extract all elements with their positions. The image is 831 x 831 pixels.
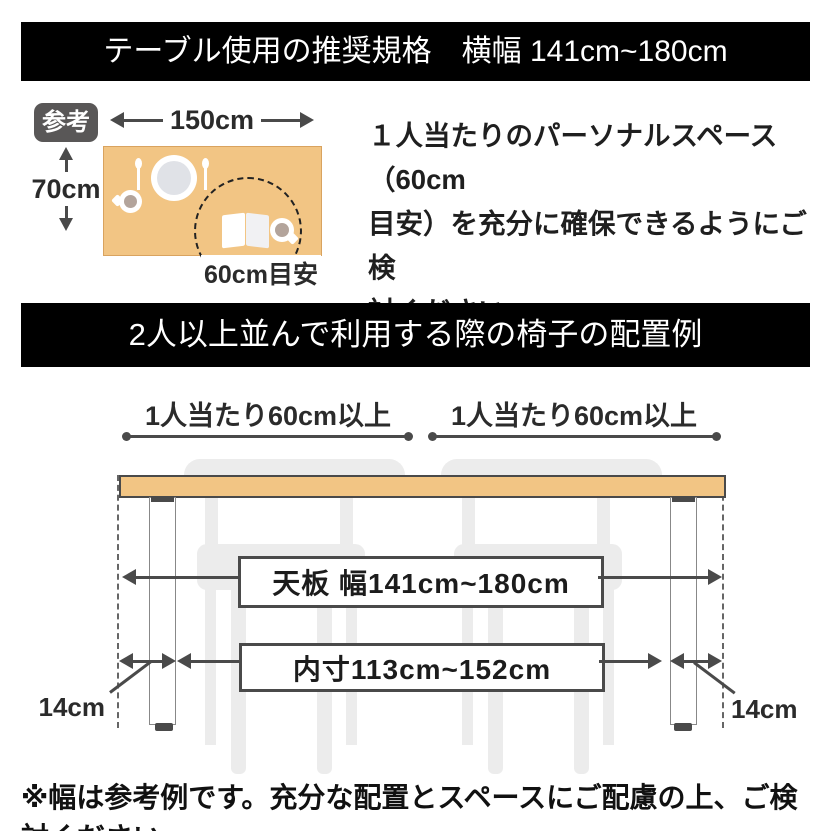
arrow-up-icon	[59, 147, 73, 160]
table-leg-left	[149, 497, 176, 725]
arrow-left-icon	[122, 569, 136, 585]
arrow-right-icon	[162, 653, 176, 669]
table-depth-dimension: 70cm	[28, 147, 104, 231]
cup-inner	[275, 223, 289, 237]
arrow-right-icon	[300, 112, 314, 128]
personal-space-description: １人当たりのパーソナルスペース（60cm 目安）を充分に確保できるようにご検 討…	[368, 114, 824, 334]
table-leg-cap	[672, 497, 695, 502]
book-icon	[246, 213, 269, 249]
arrangement-banner: 2人以上並んで利用する際の椅子の配置例	[21, 303, 810, 367]
arrow-left-icon	[177, 653, 191, 669]
edge-projection-line-right	[722, 475, 724, 728]
edge-projection-line-left	[117, 475, 119, 728]
dimension-line	[124, 119, 163, 122]
table-leg-foot	[674, 723, 692, 731]
fork-icon	[135, 158, 142, 169]
dimension-line	[65, 160, 68, 172]
per-person-label-left: 1人当たり60cm以上	[124, 394, 412, 433]
inner-width-box: 内寸113cm~152cm	[239, 643, 605, 692]
plate-inner-circle	[157, 161, 191, 195]
leg-inset-label-left: 14cm	[35, 692, 105, 723]
measure-dot	[404, 432, 413, 441]
table-depth-label: 70cm	[31, 172, 100, 206]
personal-space-label: 60cm目安	[201, 255, 321, 291]
spoon-icon	[202, 158, 209, 169]
description-line: １人当たりのパーソナルスペース（60cm	[368, 114, 824, 202]
book-icon	[222, 213, 245, 249]
table-leg-foot	[155, 723, 173, 731]
table-leg-cap	[151, 497, 174, 502]
reference-badge-label: 参考	[42, 109, 90, 136]
reference-badge: 参考	[34, 103, 98, 142]
table-width-dimension: 150cm	[110, 105, 314, 135]
top-banner: テーブル使用の推奨規格 横幅 141cm~180cm	[21, 22, 810, 81]
dimension-line	[135, 576, 238, 579]
per-person-label-right: 1人当たり60cm以上	[430, 394, 718, 433]
arrow-right-icon	[708, 653, 722, 669]
table-leg-right	[670, 497, 697, 725]
description-line: 目安）を充分に確保できるようにご検	[368, 202, 824, 290]
inner-width-label: 内寸113cm~152cm	[293, 648, 551, 688]
arrow-left-icon	[119, 653, 133, 669]
dimension-line	[190, 660, 239, 663]
tabletop-width-box: 天板 幅141cm~180cm	[238, 556, 604, 608]
dimension-line	[599, 660, 648, 663]
arrangement-banner-title: 2人以上並んで利用する際の椅子の配置例	[129, 317, 703, 352]
measure-line-right	[436, 435, 714, 438]
table-width-label: 150cm	[163, 105, 261, 136]
dimension-line	[65, 206, 68, 218]
arrow-right-icon	[708, 569, 722, 585]
arrow-down-icon	[59, 218, 73, 231]
chair-leg	[205, 588, 216, 745]
dimension-line	[598, 576, 708, 579]
tabletop-width-label: 天板 幅141cm~180cm	[272, 562, 570, 602]
dimension-line	[261, 119, 300, 122]
measure-dot	[712, 432, 721, 441]
infographic-canvas: テーブル使用の推奨規格 横幅 141cm~180cm 参考 150cm 70cm…	[0, 0, 831, 831]
tabletop-front-view	[119, 475, 726, 498]
arrow-left-icon	[110, 112, 124, 128]
cup-inner	[124, 195, 137, 208]
measure-line-left	[130, 435, 406, 438]
leg-inset-label-right: 14cm	[731, 694, 816, 725]
top-banner-title: テーブル使用の推奨規格 横幅 141cm~180cm	[103, 35, 727, 68]
footer-note: ※幅は参考例です。充分な配置とスペースにご配慮の上、ご検討ください。	[21, 776, 816, 831]
arrow-right-icon	[648, 653, 662, 669]
arrow-left-icon	[670, 653, 684, 669]
